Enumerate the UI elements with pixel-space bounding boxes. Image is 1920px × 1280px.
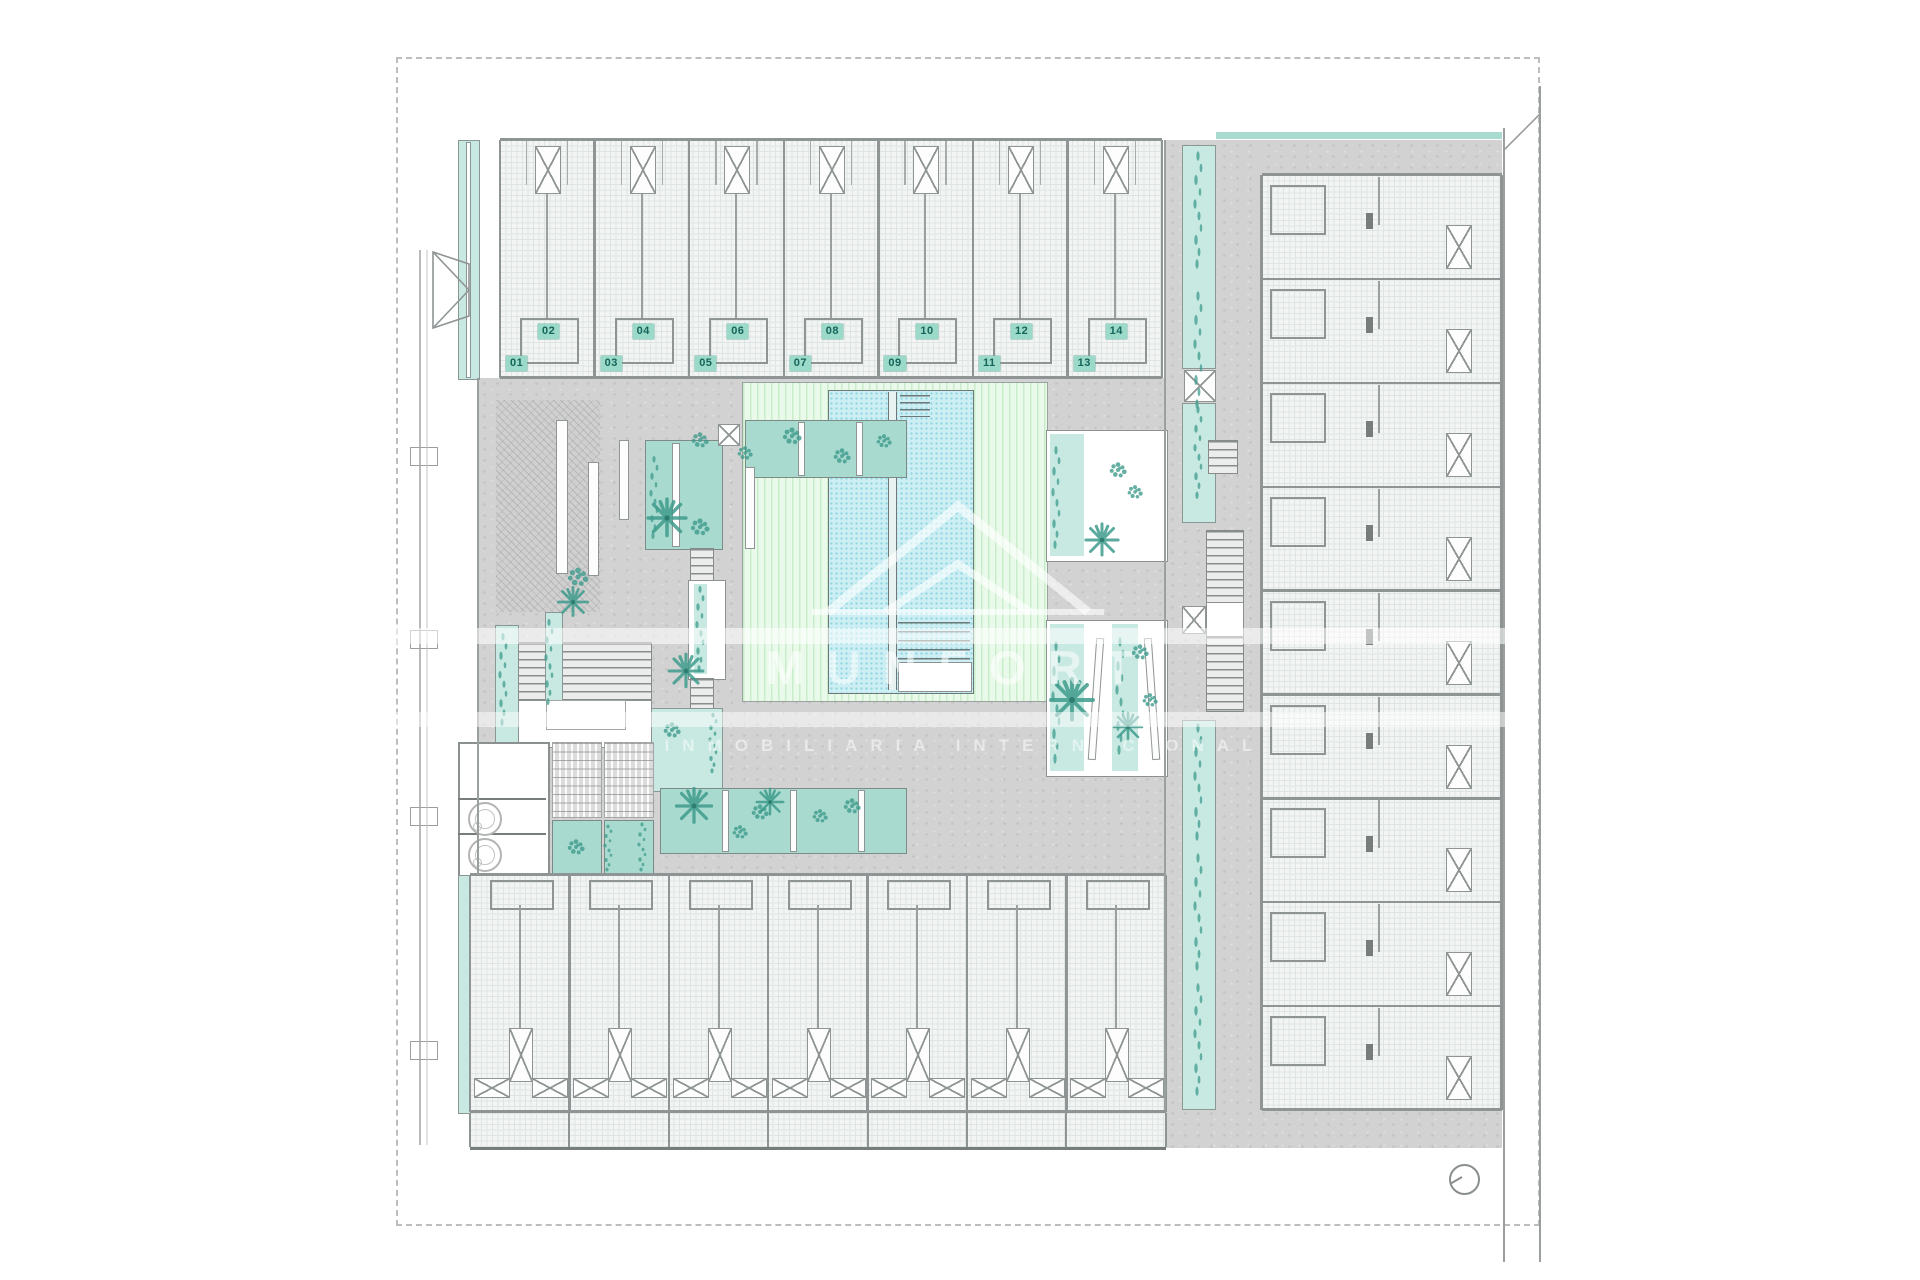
door-jamb bbox=[999, 141, 1000, 185]
unit-terrace bbox=[1270, 393, 1326, 443]
shaft-brace-icon bbox=[871, 1078, 907, 1098]
door-mark bbox=[1366, 317, 1373, 333]
shaft-brace-icon bbox=[1029, 1078, 1065, 1098]
party-wall bbox=[1065, 875, 1067, 1112]
door-mark bbox=[1366, 836, 1373, 852]
party-wall bbox=[877, 140, 879, 378]
unit-number-badge: 07 bbox=[790, 356, 811, 371]
planter-strip bbox=[545, 612, 563, 706]
door-jamb bbox=[621, 141, 622, 185]
unit-entry bbox=[1086, 880, 1150, 910]
unit-number-badge: 03 bbox=[601, 356, 622, 371]
unit-terrace bbox=[1270, 289, 1326, 339]
door-mark bbox=[1366, 421, 1373, 437]
unit-number-badge: 05 bbox=[695, 356, 716, 371]
party-wall bbox=[866, 875, 868, 1112]
party-wall bbox=[1262, 901, 1502, 903]
boundary-marker bbox=[410, 807, 438, 826]
planter-box bbox=[645, 440, 723, 550]
unit-partition bbox=[1016, 905, 1018, 1030]
unit-partition bbox=[1378, 385, 1380, 433]
door-jamb bbox=[526, 141, 527, 185]
shaft-brace-icon bbox=[1070, 1078, 1106, 1098]
unit-partition bbox=[1378, 1008, 1380, 1056]
bench-slat bbox=[745, 467, 755, 549]
floor-box bbox=[718, 424, 740, 446]
shaft-brace-icon bbox=[971, 1078, 1007, 1098]
party-wall bbox=[1165, 1113, 1167, 1147]
unit-entry bbox=[887, 880, 951, 910]
shaft-brace-icon bbox=[631, 1078, 667, 1098]
green-wall-strip bbox=[1182, 720, 1216, 1110]
shaft-brace-icon bbox=[1128, 1078, 1164, 1098]
party-wall bbox=[1066, 140, 1068, 378]
stair-landing-inner bbox=[546, 700, 626, 730]
planter-strip bbox=[694, 584, 707, 674]
unit-number-badge: 04 bbox=[633, 324, 654, 339]
planter-step bbox=[690, 548, 714, 582]
planter-step bbox=[690, 678, 714, 710]
planter-slat bbox=[856, 422, 863, 476]
unit-partition bbox=[1115, 905, 1117, 1030]
planter-strip bbox=[1050, 434, 1084, 556]
unit-number-badge: 10 bbox=[916, 324, 937, 339]
party-wall bbox=[767, 875, 769, 1112]
block-wall bbox=[500, 138, 1162, 141]
shaft-brace-icon bbox=[1446, 225, 1472, 269]
party-wall bbox=[972, 140, 974, 378]
base-wall bbox=[470, 1147, 1166, 1150]
unit-partition bbox=[1378, 800, 1380, 848]
shaft-brace-icon bbox=[1006, 1028, 1030, 1082]
unit-terrace bbox=[1270, 601, 1326, 651]
party-wall bbox=[867, 1113, 869, 1147]
party-wall bbox=[1262, 797, 1502, 799]
planter-slat bbox=[858, 790, 865, 852]
party-wall bbox=[568, 1113, 570, 1147]
door-mark bbox=[1366, 525, 1373, 541]
shaft-brace-icon bbox=[1446, 537, 1472, 581]
unit-entry bbox=[490, 880, 554, 910]
shaft-brace-icon bbox=[819, 146, 845, 194]
planter-box bbox=[552, 820, 602, 877]
paved-patio bbox=[496, 400, 600, 612]
unit-number-badge: 02 bbox=[538, 324, 559, 339]
unit-terrace bbox=[1270, 1016, 1326, 1066]
north-east-walkway bbox=[1262, 140, 1502, 175]
block-wall bbox=[1500, 175, 1503, 1110]
shaft-brace-icon bbox=[509, 1028, 533, 1082]
planter-slat bbox=[798, 422, 805, 476]
green-wall-strip bbox=[1182, 145, 1216, 369]
shaft-brace-icon bbox=[708, 1028, 732, 1082]
door-jamb bbox=[1135, 141, 1136, 185]
unit-entry bbox=[689, 880, 753, 910]
party-wall bbox=[1262, 486, 1502, 488]
storage-rack bbox=[604, 742, 654, 818]
shaft-brace-icon bbox=[731, 1078, 767, 1098]
courtyard-wall bbox=[1164, 140, 1166, 1110]
site-plan-canvas: 0201040306050807100912111413 bbox=[0, 0, 1920, 1280]
shaft-brace-icon bbox=[1446, 641, 1472, 685]
unit-partition bbox=[1378, 177, 1380, 225]
door-jamb bbox=[851, 141, 852, 185]
party-wall bbox=[469, 1113, 471, 1147]
shaft-brace-icon bbox=[1446, 329, 1472, 373]
party-wall bbox=[568, 875, 570, 1112]
unit-number-badge: 13 bbox=[1074, 356, 1095, 371]
boundary-marker bbox=[410, 447, 438, 466]
door-mark bbox=[1366, 213, 1373, 229]
party-wall bbox=[499, 140, 501, 378]
party-wall bbox=[668, 875, 670, 1112]
unit-number-badge: 06 bbox=[727, 324, 748, 339]
block-wall bbox=[1260, 175, 1263, 1110]
unit-partition bbox=[1378, 281, 1380, 329]
bench-slat bbox=[588, 462, 599, 576]
elevator-shaft-icon bbox=[1184, 370, 1216, 402]
shaft-brace-icon bbox=[1446, 952, 1472, 996]
unit-terrace bbox=[1270, 912, 1326, 962]
unit-number-badge: 12 bbox=[1011, 324, 1032, 339]
courtyard-wall bbox=[477, 378, 479, 875]
block-wall bbox=[500, 376, 1162, 379]
storage-rack bbox=[552, 742, 602, 818]
block-wall bbox=[1262, 173, 1502, 176]
party-wall bbox=[688, 140, 690, 378]
shaft-brace-icon bbox=[535, 146, 561, 194]
planter-box bbox=[645, 708, 723, 792]
shaft-brace-icon bbox=[673, 1078, 709, 1098]
washing-machine-icon bbox=[468, 838, 502, 872]
door-jamb bbox=[567, 141, 568, 185]
door-jamb bbox=[810, 141, 811, 185]
north-indicator-icon bbox=[1449, 1164, 1480, 1195]
block-wall bbox=[470, 873, 1166, 876]
shaft-brace-icon bbox=[906, 1028, 930, 1082]
party-wall bbox=[783, 140, 785, 378]
shaft-brace-icon bbox=[1446, 1056, 1472, 1100]
unit-terrace bbox=[1270, 808, 1326, 858]
party-wall bbox=[1262, 1005, 1502, 1007]
bench-slat bbox=[619, 440, 629, 520]
shaft-brace-icon bbox=[929, 1078, 965, 1098]
shaft-brace-icon bbox=[1008, 146, 1034, 194]
unit-partition bbox=[1378, 697, 1380, 745]
shaft-brace-icon bbox=[1446, 433, 1472, 477]
unit-partition bbox=[618, 905, 620, 1030]
party-wall bbox=[1065, 1113, 1067, 1147]
laundry-wall bbox=[458, 833, 546, 835]
shaft-brace-icon bbox=[913, 146, 939, 194]
green-roof-edge bbox=[1216, 132, 1502, 139]
shaft-brace-icon bbox=[724, 146, 750, 194]
shaft-brace-icon bbox=[630, 146, 656, 194]
door-mark bbox=[1366, 629, 1373, 645]
unit-partition bbox=[1378, 489, 1380, 537]
unit-partition bbox=[1378, 904, 1380, 952]
party-wall bbox=[469, 875, 471, 1112]
unit-number-badge: 09 bbox=[884, 356, 905, 371]
planter-strip bbox=[1112, 624, 1138, 771]
shaft-brace-icon bbox=[1105, 1028, 1129, 1082]
block-wall bbox=[1262, 1108, 1502, 1111]
shaft-brace-icon bbox=[772, 1078, 808, 1098]
unit-number-badge: 11 bbox=[979, 356, 1000, 371]
planter-strip bbox=[1050, 624, 1084, 771]
bench-slat bbox=[556, 420, 568, 574]
boundary-marker bbox=[410, 630, 438, 649]
door-mark bbox=[1366, 940, 1373, 956]
planter-slat bbox=[790, 790, 797, 852]
door-mark bbox=[1366, 733, 1373, 749]
shaft-brace-icon bbox=[830, 1078, 866, 1098]
shaft-brace-icon bbox=[1446, 848, 1472, 892]
party-wall bbox=[1262, 693, 1502, 695]
stair-landing bbox=[1206, 602, 1244, 638]
party-wall bbox=[593, 140, 595, 378]
unit-number-badge: 14 bbox=[1106, 324, 1127, 339]
unit-entry bbox=[987, 880, 1051, 910]
pool-steps bbox=[898, 622, 970, 662]
planter-slat bbox=[722, 790, 729, 852]
elevator-shaft-icon bbox=[1182, 606, 1206, 634]
staircase-icon bbox=[518, 642, 652, 702]
south-terrace-strip bbox=[470, 1113, 1166, 1147]
door-jamb bbox=[662, 141, 663, 185]
planter-slat bbox=[672, 443, 680, 547]
planter-box bbox=[660, 788, 907, 854]
shaft-brace-icon bbox=[807, 1028, 831, 1082]
unit-number-badge: 01 bbox=[506, 356, 527, 371]
door-jamb bbox=[945, 141, 946, 185]
unit-partition bbox=[817, 905, 819, 1030]
unit-partition bbox=[1378, 593, 1380, 641]
boundary-marker bbox=[410, 1041, 438, 1060]
wall-slat bbox=[466, 142, 471, 378]
unit-partition bbox=[718, 905, 720, 1030]
door-jamb bbox=[756, 141, 757, 185]
shaft-brace-icon bbox=[1103, 146, 1129, 194]
shaft-brace-icon bbox=[573, 1078, 609, 1098]
pool-ladder-icon bbox=[900, 395, 930, 417]
pool-bench bbox=[898, 662, 972, 692]
party-wall bbox=[966, 1113, 968, 1147]
south-east-walkway bbox=[1166, 1108, 1502, 1148]
shaft-brace-icon bbox=[532, 1078, 568, 1098]
staircase-icon bbox=[1208, 440, 1238, 474]
unit-entry bbox=[788, 880, 852, 910]
unit-partition bbox=[916, 905, 918, 1030]
washing-machine-icon bbox=[468, 802, 502, 836]
party-wall bbox=[1262, 278, 1502, 280]
party-wall bbox=[767, 1113, 769, 1147]
staircase-icon bbox=[1206, 530, 1244, 604]
shaft-brace-icon bbox=[1446, 745, 1472, 789]
planter-box bbox=[745, 420, 907, 478]
party-wall bbox=[1262, 382, 1502, 384]
shaft-brace-icon bbox=[608, 1028, 632, 1082]
staircase-icon bbox=[1206, 636, 1244, 712]
party-wall bbox=[1262, 589, 1502, 591]
unit-terrace bbox=[1270, 497, 1326, 547]
unit-entry bbox=[589, 880, 653, 910]
party-wall bbox=[966, 875, 968, 1112]
door-jamb bbox=[715, 141, 716, 185]
unit-number-badge: 08 bbox=[822, 324, 843, 339]
unit-terrace bbox=[1270, 705, 1326, 755]
unit-terrace bbox=[1270, 185, 1326, 235]
door-mark bbox=[1366, 1044, 1373, 1060]
unit-partition bbox=[519, 905, 521, 1030]
laundry-wall bbox=[458, 798, 546, 800]
door-jamb bbox=[1040, 141, 1041, 185]
planter-box bbox=[604, 820, 654, 877]
shaft-brace-icon bbox=[474, 1078, 510, 1098]
party-wall bbox=[668, 1113, 670, 1147]
door-jamb bbox=[1094, 141, 1095, 185]
planter-strip bbox=[495, 625, 519, 745]
door-jamb bbox=[904, 141, 905, 185]
